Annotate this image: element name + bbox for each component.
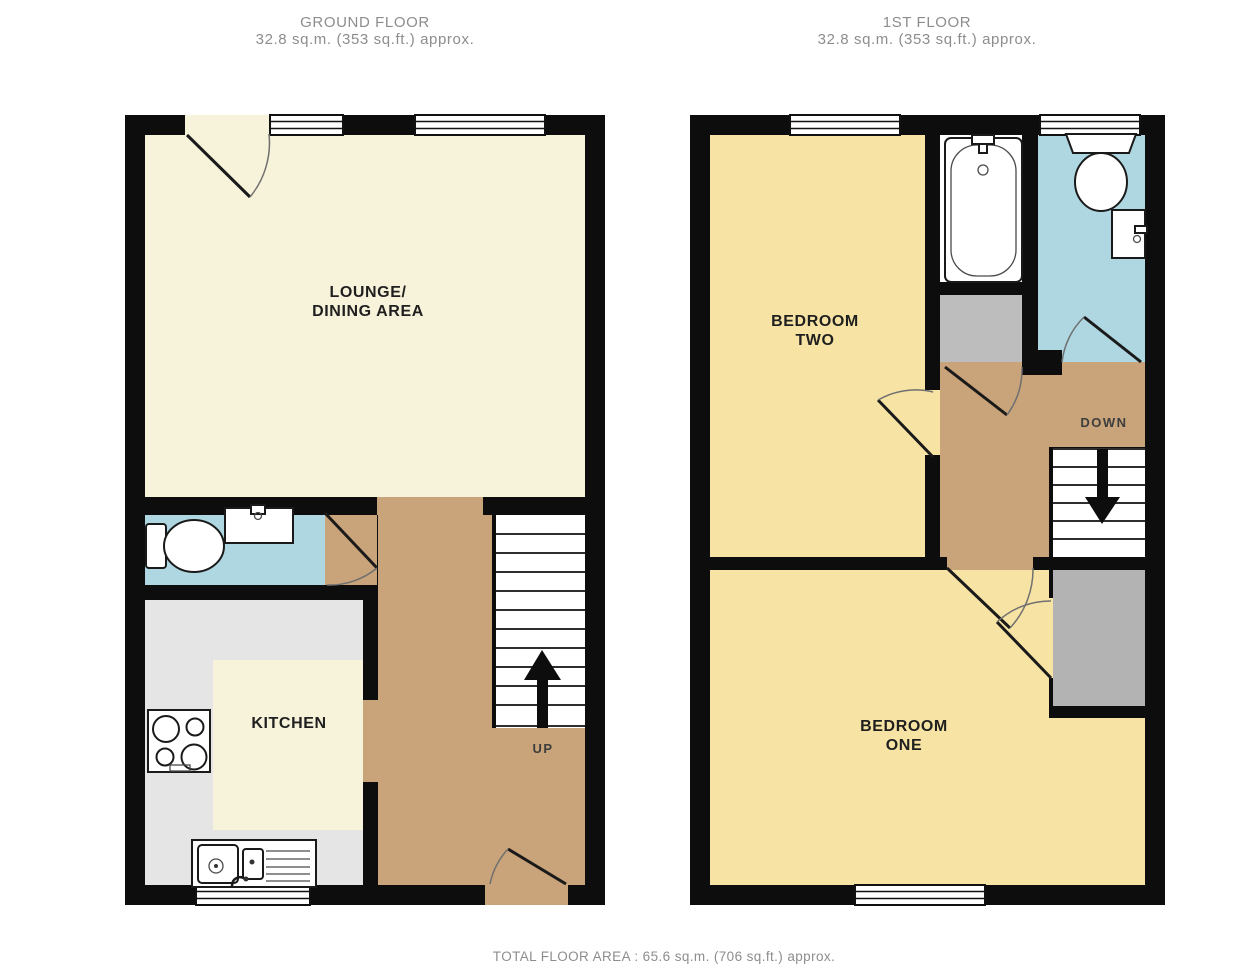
first-floor-title: 1ST FLOOR [883,14,971,31]
kitchen-doorway-opening [363,700,378,782]
floorplan-drawing: GROUND FLOOR 32.8 sq.m. (353 sq.ft.) app… [0,0,1247,969]
bedroom-one-label-line1: BEDROOM [860,718,948,735]
landing-area-lower [940,447,1049,557]
kitchen-counter-area [213,660,363,830]
window [790,115,900,135]
ground-floor-title: GROUND FLOOR [300,14,430,31]
floorplan-canvas: GROUND FLOOR 32.8 sq.m. (353 sq.ft.) app… [0,0,1247,969]
window [415,115,545,135]
bathroom-sink [1112,210,1147,258]
ground-floor-area: 32.8 sq.m. (353 sq.ft.) approx. [256,31,475,48]
bedroom-two-label-line2: TWO [795,332,834,349]
rear-door-opening [485,885,568,905]
down-label: DOWN [1080,415,1127,430]
front-door-opening [185,115,270,135]
first-floor-area: 32.8 sq.m. (353 sq.ft.) approx. [818,31,1037,48]
up-label: UP [532,741,553,756]
bedroom-one-label-line2: ONE [886,737,922,754]
lounge-label-line1: LOUNGE/ [329,284,406,301]
total-floor-area-label: TOTAL FLOOR AREA : 65.6 sq.m. (706 sq.ft… [493,949,835,964]
kitchen-label: KITCHEN [251,715,326,732]
bedroom-two-label-line1: BEDROOM [771,313,859,330]
window [270,115,343,135]
window [1040,115,1140,135]
lounge-label-line2: DINING AREA [312,303,424,320]
lounge-doorway-opening [377,497,483,515]
airing-cupboard-area [940,295,1022,363]
bathtub [945,135,1022,282]
bedroom-cupboard-area [1053,570,1145,710]
kitchen-hob [148,710,210,772]
window [855,885,985,905]
bedroom-two-doorway-opening [925,390,940,455]
kitchen-sink [192,840,316,887]
wc-toilet [146,520,224,572]
wc-sink [225,505,293,543]
bedroom-one-doorway-opening [947,557,1033,570]
